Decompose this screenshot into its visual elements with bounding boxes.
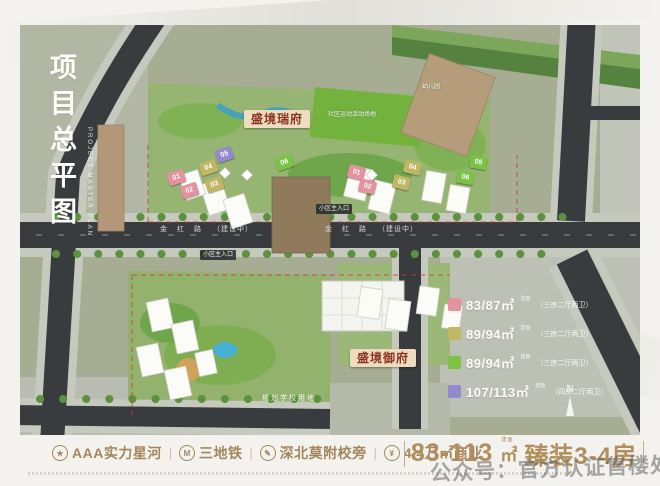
legend-desc: （三房二厅两卫） [537, 329, 593, 339]
main-entrance-label-north: 小区主入口 [316, 204, 352, 214]
unit-type-legend: 83/87㎡ 建面 （三房二厅两卫） 89/94㎡ 建面 （三房二厅两卫） 89… [448, 295, 607, 401]
medal-icon: ★ [52, 445, 68, 461]
legend-note: 建面 [521, 324, 531, 331]
legend-row: 83/87㎡ 建面 （三房二厅两卫） [448, 295, 607, 314]
road-name: 金红路 [325, 226, 376, 233]
estate-label-north: 盛境瑞府 [244, 110, 310, 128]
legend-desc: （三房二厅两卫） [537, 300, 593, 310]
legend-note: 建面 [521, 295, 531, 302]
road-name-label-west: 金红路（建设中） [160, 224, 253, 234]
legend-area: 107/113㎡ [466, 382, 529, 401]
legend-swatch-pink [448, 298, 461, 311]
page-subtitle: PROJECT MASTER PLAN [86, 127, 92, 237]
legend-desc: （三房二厅两卫） [537, 358, 593, 368]
legend-row: 107/113㎡ 建面 （四房二厅两卫） [448, 382, 607, 401]
legend-area: 83/87㎡ [466, 295, 515, 314]
kindergarten-label: 幼儿园 [422, 81, 440, 90]
metro-icon: M [179, 445, 195, 461]
legend-note: 建面 [535, 382, 545, 389]
legend-swatch-purple [448, 385, 461, 398]
school-land-label: 规划学校用地 [262, 393, 316, 403]
road-status: （建设中） [213, 226, 253, 233]
road-name-label-east: 金红路（建设中） [325, 224, 418, 234]
feature-label: 三地铁 [199, 443, 243, 463]
road-name: 金红路 [160, 226, 211, 233]
headline-unit-note: 建面 [501, 436, 513, 443]
poster: 项目总平图 PROJECT MASTER PLAN 01 02 03 04 05… [0, 0, 660, 486]
feature-metro: M 三地铁 [179, 443, 243, 463]
feature-separator: | [374, 446, 377, 460]
building-marker: 06 [456, 170, 475, 186]
legend-row: 89/94㎡ 建面 （三房二厅两卫） [448, 353, 607, 372]
building-marker: 05 [469, 155, 488, 171]
feature-label: AAA实力星河 [72, 443, 162, 463]
school-icon: ✎ [260, 445, 276, 461]
main-entrance-label-south: 小区主入口 [200, 250, 236, 260]
feature-separator: | [169, 446, 172, 460]
feature-school: ✎ 深北莫附校旁 [260, 443, 367, 463]
feature-brand: ★ AAA实力星河 [52, 443, 162, 463]
headline-left-bar [404, 441, 405, 467]
sports-area-label: 社区运动活动场地 [328, 109, 376, 118]
footer: ★ AAA实力星河 | M 三地铁 | ✎ 深北莫附校旁 | ¥ 4.4万㎡商业… [0, 435, 660, 486]
legend-area: 89/94㎡ [466, 324, 515, 343]
mall-icon: ¥ [384, 445, 400, 461]
legend-area: 89/94㎡ [466, 353, 515, 372]
legend-row: 89/94㎡ 建面 （三房二厅两卫） [448, 324, 607, 343]
legend-swatch-green [448, 356, 461, 369]
legend-note: 建面 [521, 353, 531, 360]
road-status: （建设中） [378, 226, 418, 233]
estate-label-south: 盛境御府 [350, 349, 416, 367]
feature-separator: | [249, 446, 252, 460]
page-title: 项目总平图 [42, 53, 81, 233]
site-plan-map: 项目总平图 PROJECT MASTER PLAN 01 02 03 04 05… [20, 25, 640, 435]
legend-swatch-olive [448, 327, 461, 340]
compass-arrow-icon [566, 396, 574, 416]
feature-label: 深北莫附校旁 [280, 443, 367, 463]
compass-north-label: N [560, 383, 580, 395]
compass: N [560, 383, 580, 416]
